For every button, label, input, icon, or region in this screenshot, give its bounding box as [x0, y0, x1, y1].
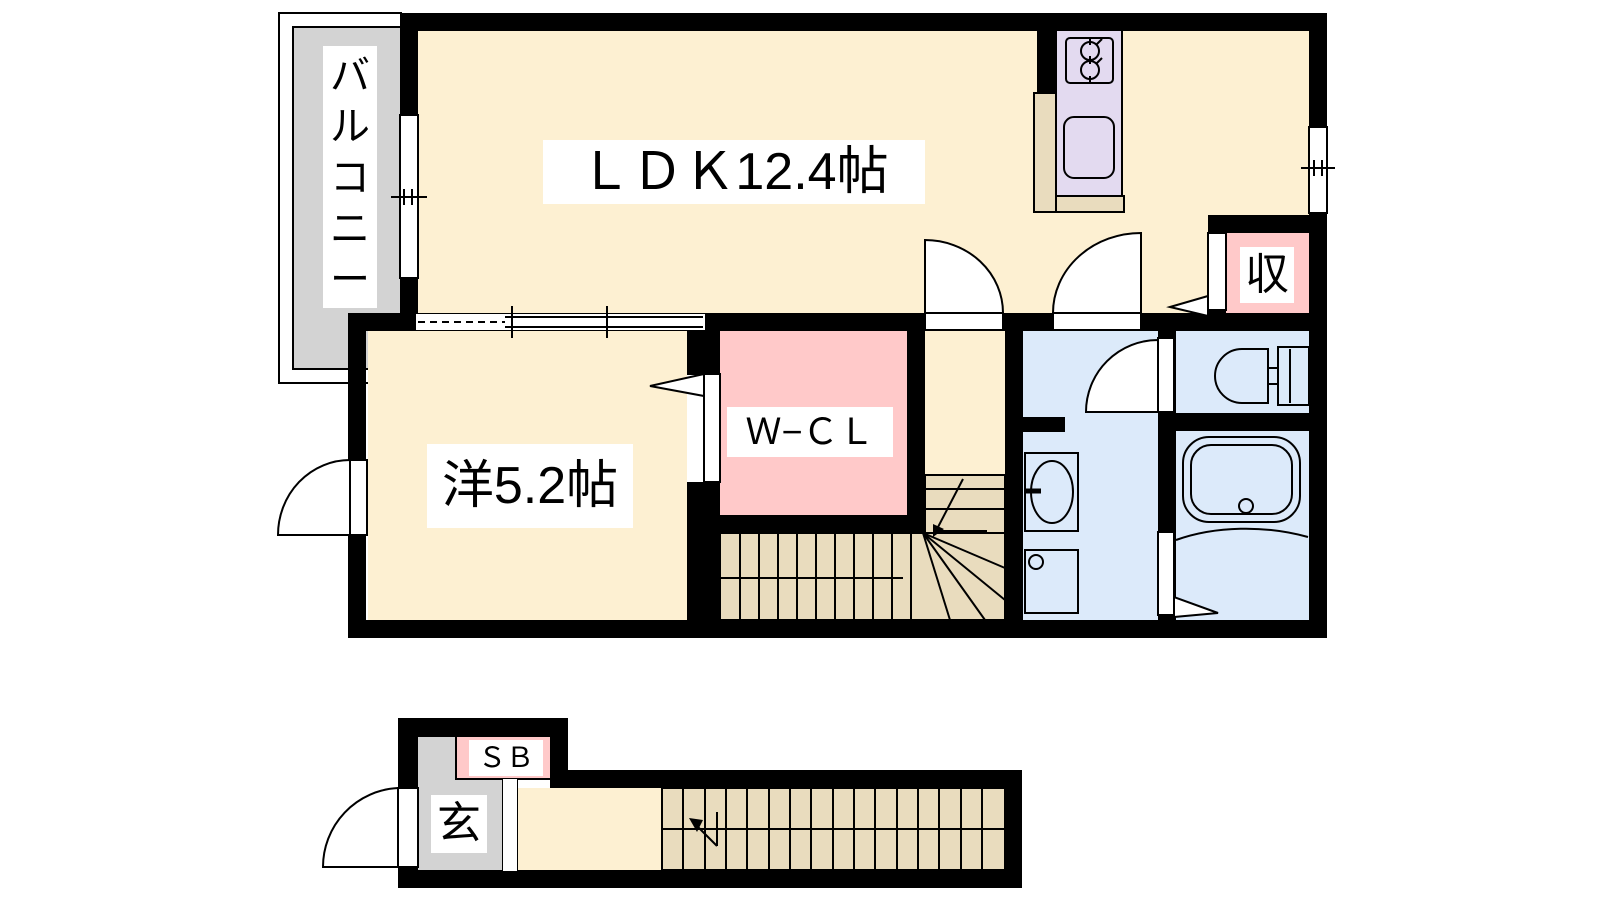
western-room-label: 洋5.2帖 [427, 444, 633, 528]
floorplan-canvas: バルコニー ＬＤＫ12.4帖 洋5.2帖 Ｗ−ＣＬ 収 ＳＢ 玄 [0, 0, 1600, 900]
entry-door-icon [323, 788, 418, 867]
door-western-room-icon [278, 460, 367, 535]
door-washroom-inner-icon [1086, 338, 1174, 412]
stairs-1f-icon [662, 788, 1005, 870]
storage-label: 収 [1240, 247, 1294, 303]
sliding-door-icon [416, 306, 705, 338]
bathtub-icon [1176, 437, 1308, 540]
window-balcony-icon [391, 115, 427, 278]
door-washroom-ldk-icon [1053, 233, 1141, 330]
door-storage-icon [1170, 233, 1226, 316]
stove-icon [1066, 38, 1113, 83]
door-bathroom-icon [1158, 532, 1218, 617]
stairs-2f-icon [720, 475, 1005, 620]
vanity-sink-icon [1024, 453, 1078, 531]
door-wcl-icon [650, 374, 720, 482]
shoe-box-label: ＳＢ [469, 740, 543, 776]
ldk-label: ＬＤＫ12.4帖 [543, 140, 925, 204]
balcony-label: バルコニー [323, 46, 377, 308]
toilet-icon [1215, 347, 1309, 405]
door-hall-ldk-icon [925, 240, 1003, 330]
window-ldk-right-icon [1301, 127, 1335, 213]
entrance-label: 玄 [431, 795, 487, 853]
kitchen-sink-icon [1064, 117, 1114, 178]
wcl-label: Ｗ−ＣＬ [727, 407, 893, 457]
washing-machine-pan-icon [1025, 550, 1078, 613]
